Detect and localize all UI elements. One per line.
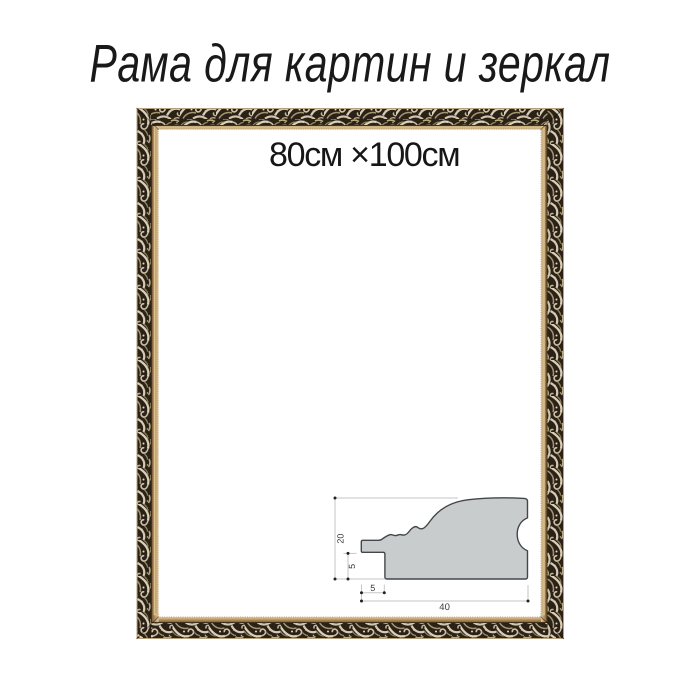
svg-text:20: 20 [336, 534, 346, 544]
svg-text:5: 5 [370, 583, 375, 593]
svg-text:5: 5 [347, 564, 357, 569]
svg-text:40: 40 [439, 602, 450, 613]
